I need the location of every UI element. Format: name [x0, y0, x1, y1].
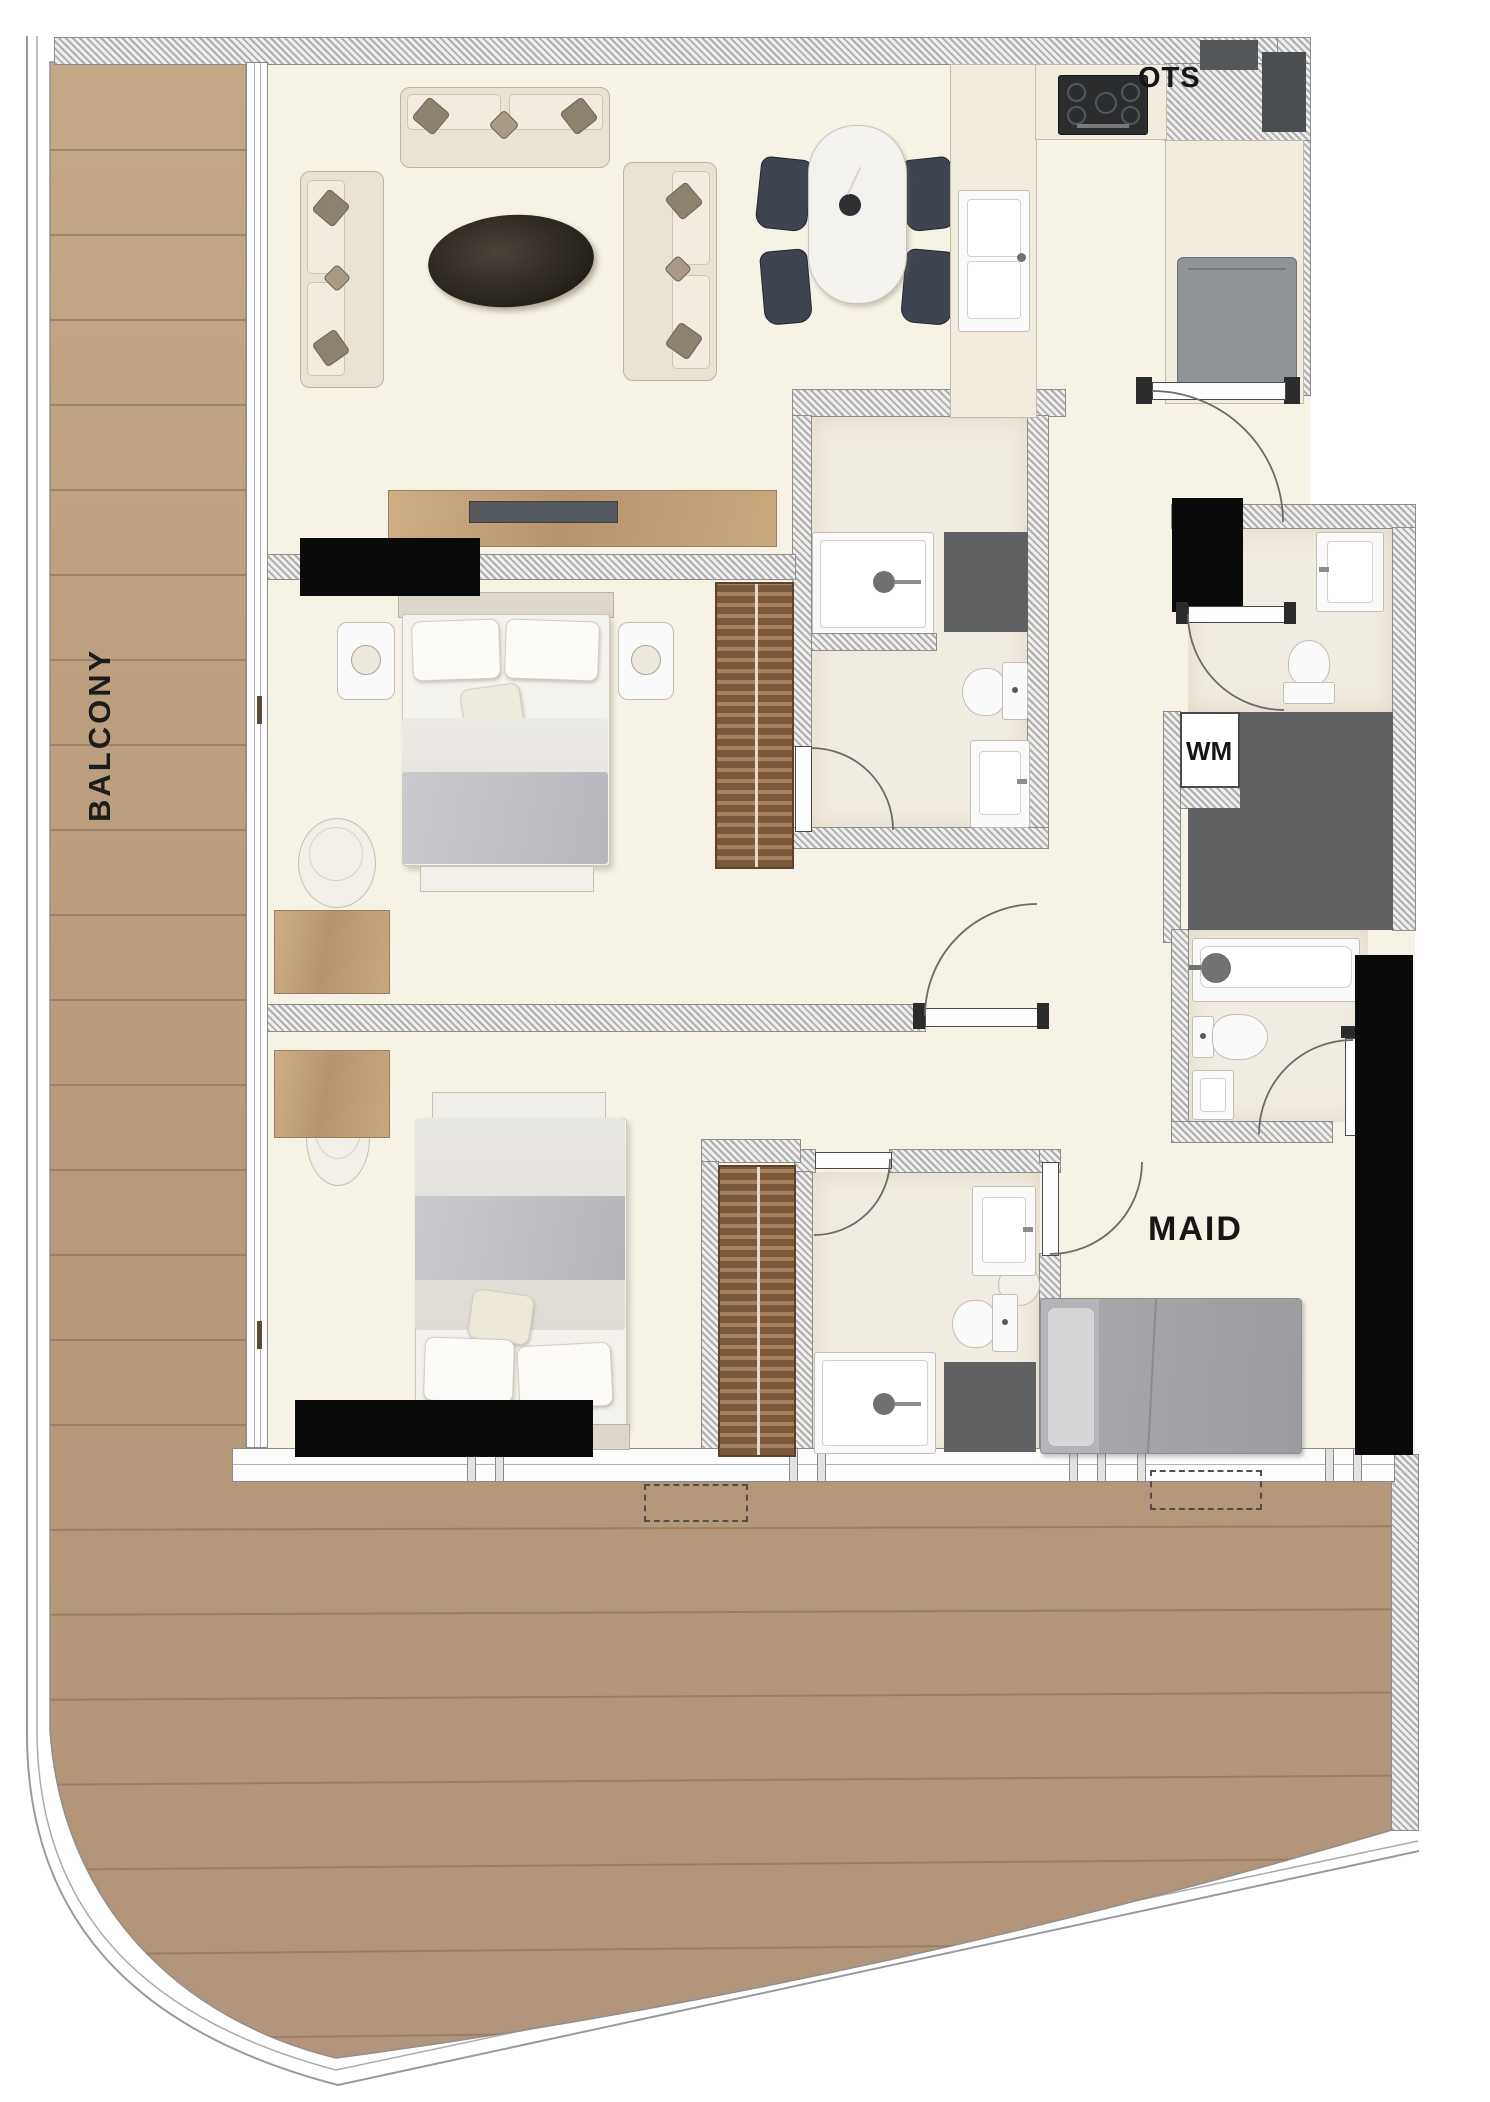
- ots-label: OTS: [1138, 62, 1201, 95]
- washing-machine-niche: WM: [1180, 712, 1240, 788]
- bedrooms-divider-wall: [268, 1005, 925, 1031]
- entry-door-jamb: [1136, 377, 1152, 404]
- guest-bathroom-right-wall: [1393, 528, 1415, 930]
- bedroom2-black-unit: [295, 1400, 593, 1457]
- dining-chair: [754, 155, 813, 232]
- deck-unit-marker: [1150, 1470, 1262, 1510]
- bedroom2-corridor-wall-a: [1040, 1150, 1060, 1162]
- sofa-top: [400, 87, 610, 168]
- window-wall-line-2: [260, 63, 261, 1447]
- wardrobe2-frame-top: [702, 1140, 800, 1162]
- shower-tray-bathroom1: [812, 532, 934, 636]
- table-vein: [847, 167, 861, 195]
- balcony-window-wall: [246, 62, 268, 1448]
- bedroom1-black-unit: [300, 538, 480, 596]
- toilet-maid: [1212, 1014, 1268, 1060]
- guest-bathroom-door-leaf: [1188, 606, 1286, 623]
- maid-bathroom-left-wall: [1172, 930, 1188, 1142]
- bathroom1-door-leaf: [795, 746, 812, 832]
- ots-shaft-block-b: [1262, 52, 1306, 132]
- bathroom2-vanity-block: [944, 1362, 1036, 1452]
- shower-drain: [873, 571, 895, 593]
- entry-door-jamb: [1284, 377, 1300, 404]
- toilet-tank-maid: [1192, 1016, 1214, 1058]
- dining-chair: [759, 248, 813, 326]
- corridor-right-wall: [1164, 712, 1180, 942]
- bed2-blanket: [415, 1196, 625, 1280]
- bathroom1-vanity-block: [944, 532, 1028, 632]
- wm-label: WM: [1186, 736, 1232, 767]
- bed1-pillow: [411, 618, 501, 681]
- maid-room-black-column: [1355, 955, 1413, 1455]
- bed1-bench: [420, 866, 594, 892]
- desk-bedroom1: [274, 910, 390, 994]
- window-mullion: [1325, 1449, 1334, 1481]
- shower-low-wall: [812, 634, 936, 650]
- bathtub-maid: [1192, 938, 1360, 1002]
- dining-table: [808, 125, 907, 304]
- tv-screen: [469, 501, 618, 523]
- toilet-tank-guest-bathroom: [1283, 682, 1335, 704]
- balcony-label: BALCONY: [82, 492, 120, 822]
- deck-unit-marker: [644, 1484, 748, 1522]
- nightstand: [337, 622, 395, 700]
- guest-door-jamb: [1284, 602, 1296, 624]
- bathroom1-right-wall: [1028, 416, 1048, 848]
- wardrobe-bedroom1: [715, 582, 794, 869]
- maid-bed: [1040, 1298, 1302, 1454]
- stove-knobs: [1077, 124, 1129, 128]
- desk-chair-bedroom1: [298, 818, 376, 908]
- toilet-guest-bathroom: [1288, 640, 1330, 686]
- nightstand: [618, 622, 674, 700]
- bathroom1-bottom-wall: [793, 828, 1048, 848]
- bedroom2-door-leaf: [925, 1008, 1039, 1027]
- toilet-tank-bathroom2: [992, 1294, 1018, 1352]
- bathroom1-left-wall: [793, 416, 811, 746]
- maid-bed-pillow: [1047, 1307, 1095, 1447]
- utility-dark-zone-b: [1188, 808, 1240, 930]
- toilet-bathroom2: [952, 1300, 996, 1348]
- sofa-left: [300, 171, 384, 388]
- entry-door-leaf: [1152, 382, 1286, 400]
- wardrobe2-frame-left: [702, 1162, 718, 1454]
- dining-chair: [900, 248, 957, 326]
- bathroom2-left-wall: [795, 1172, 812, 1455]
- lamp: [351, 645, 381, 675]
- maid-bed-blanket: [1099, 1299, 1301, 1453]
- utility-dark-zone-a: [1240, 712, 1393, 930]
- table-bowl: [839, 194, 861, 216]
- maid-bathroom-bottom-wall: [1172, 1122, 1332, 1142]
- bedroom2-door-jamb: [1037, 1003, 1049, 1029]
- bathroom2-top-wall-b: [890, 1150, 1060, 1172]
- sink-maid: [1192, 1070, 1234, 1120]
- sliding-door-handle-1: [257, 696, 262, 724]
- toilet-bathroom1: [962, 668, 1006, 716]
- sink-bathroom1: [970, 740, 1030, 828]
- window-wall-line: [254, 63, 255, 1447]
- floor-plan: OTS: [0, 0, 1490, 2102]
- kitchen-sink: [958, 190, 1030, 332]
- shower-drain-2: [873, 1393, 895, 1415]
- bed2-pillow: [423, 1336, 515, 1403]
- lamp: [631, 645, 661, 675]
- toilet-tank-bathroom1: [1002, 662, 1028, 720]
- bed1-pillow: [504, 618, 600, 681]
- bed2-bench: [432, 1092, 606, 1120]
- sink-guest-bathroom: [1316, 532, 1384, 612]
- maid-label: MAID: [1148, 1210, 1243, 1249]
- bed1-blanket: [402, 772, 608, 864]
- shaft-black-block: [1172, 498, 1243, 612]
- dining-chair: [899, 156, 957, 233]
- kitchen-faucet: [1017, 253, 1026, 262]
- desk-bedroom2: [274, 1050, 390, 1138]
- bedroom2-hall-door-leaf: [1042, 1162, 1059, 1256]
- shower-tray-bathroom2: [814, 1352, 936, 1454]
- bathroom2-door-leaf: [815, 1152, 892, 1169]
- sliding-door-handle-2: [257, 1321, 262, 1349]
- fridge: [1177, 257, 1297, 397]
- sofa-right: [623, 162, 717, 381]
- deck-right-wall: [1392, 1455, 1418, 1830]
- window-wall-hline: [233, 1464, 1394, 1465]
- tub-faucet: [1201, 953, 1231, 983]
- top-wall: [55, 38, 1310, 64]
- wardrobe-bedroom2: [718, 1165, 796, 1457]
- bedroom2-door-jamb: [913, 1003, 925, 1029]
- guest-door-jamb: [1176, 602, 1188, 624]
- stove-cooktop: [1058, 75, 1148, 135]
- sink-bathroom2: [972, 1186, 1036, 1276]
- ots-shaft-block-a: [1200, 40, 1258, 70]
